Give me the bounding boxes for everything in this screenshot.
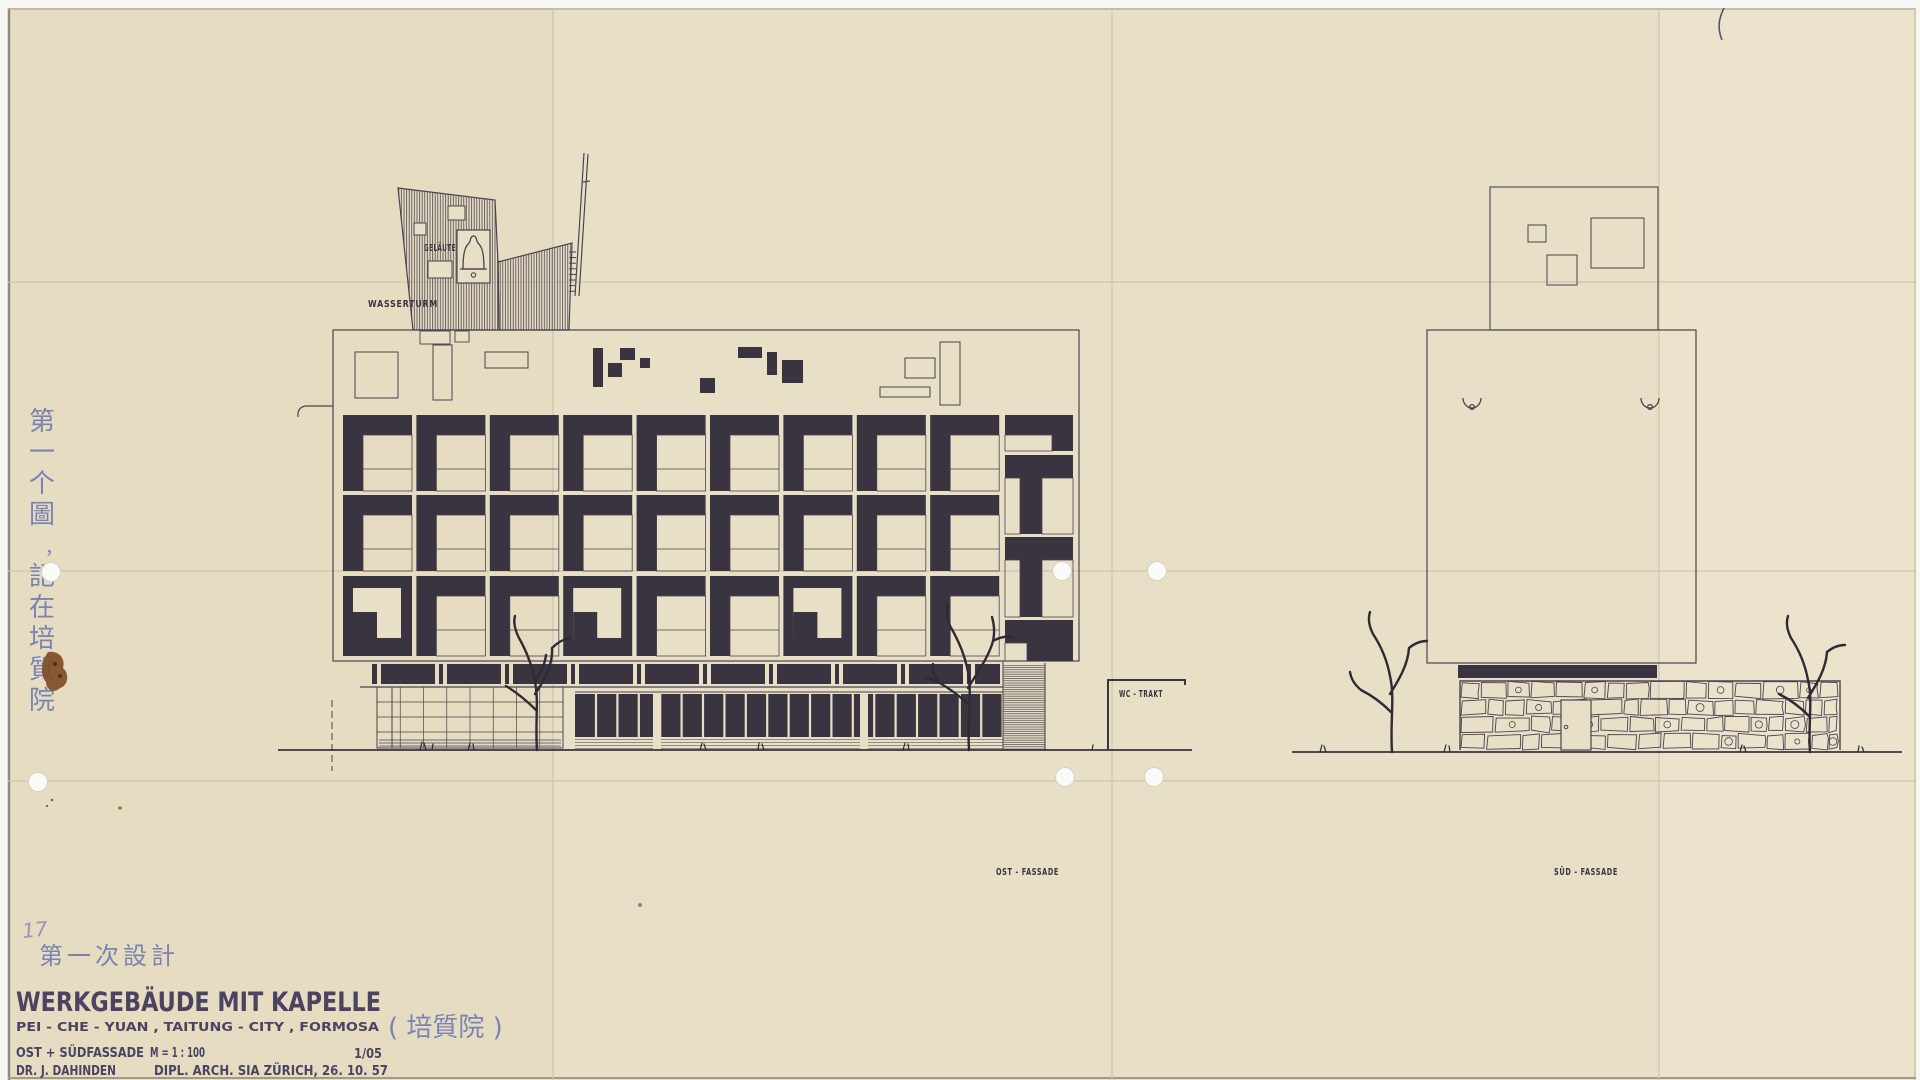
wc-trakt-label: WC - TRAKT — [1119, 689, 1163, 700]
elevation-drawing: GELÄUTE WASSERTURM — [0, 0, 1920, 1080]
paper-tone-right — [1659, 8, 1916, 1080]
scale-label: M = 1 : 100 — [150, 1046, 205, 1061]
wall-door — [1561, 700, 1591, 750]
paper-tone-left — [8, 8, 553, 1080]
author-credentials: DIPL. ARCH. SIA ZÜRICH, 26. 10. 57 — [154, 1063, 388, 1079]
louver-shutter — [1003, 661, 1045, 750]
note-cn: 第一次設計 — [39, 942, 179, 970]
views-label: OST + SÜDFASSADE — [16, 1045, 144, 1061]
wasserturm-label: WASSERTURM — [368, 299, 438, 310]
sheet-number-pencil: 17 — [21, 916, 49, 943]
bell-chamber — [457, 230, 490, 283]
south-facade-label: SÜD - FASSADE — [1554, 864, 1618, 878]
drawing-subtitle: PEI - CHE - YUAN , TAITUNG - CITY , FORM… — [16, 1019, 379, 1034]
scanned-drawing-sheet: GELÄUTE WASSERTURM — [0, 0, 1920, 1080]
east-facade-label: OST - FASSADE — [996, 867, 1059, 878]
drawing-title: WERKGEBÄUDE MIT KAPELLE — [16, 986, 381, 1018]
sheet-index: 1/05 — [354, 1047, 382, 1062]
dark-curtain-wall — [575, 688, 1003, 750]
subtitle-cn: ( 培質院 ) — [388, 1013, 503, 1043]
gelaeute-label: GELÄUTE — [424, 240, 456, 254]
author-name: DR. J. DAHINDEN — [16, 1064, 116, 1079]
wall-shadow-band — [1458, 665, 1657, 678]
